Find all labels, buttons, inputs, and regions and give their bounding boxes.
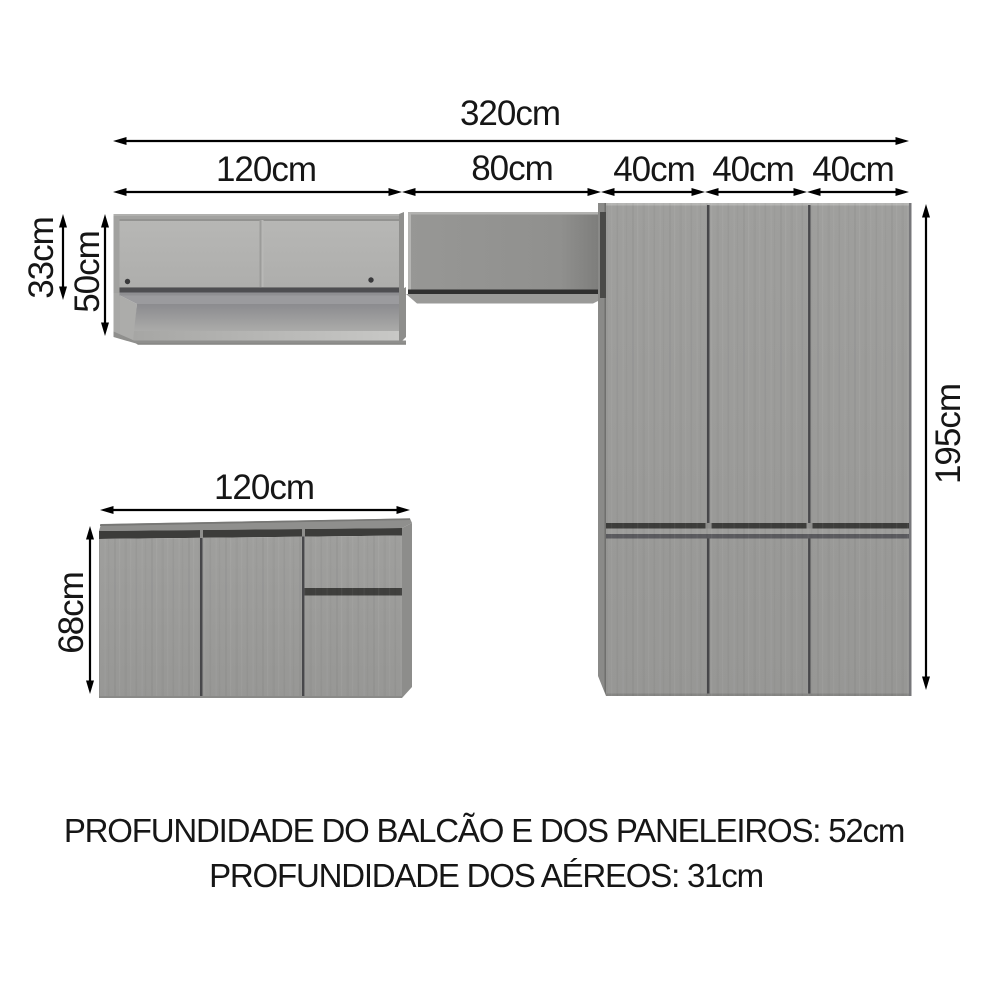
svg-text:120cm: 120cm [214,468,314,507]
svg-text:320cm: 320cm [460,94,560,133]
svg-text:195cm: 195cm [929,384,968,484]
svg-text:80cm: 80cm [471,149,553,188]
svg-text:PROFUNDIDADE DO BALCÃO E DOS P: PROFUNDIDADE DO BALCÃO E DOS PANELEIROS:… [64,812,904,849]
svg-text:40cm: 40cm [613,150,695,189]
svg-text:40cm: 40cm [712,150,794,189]
svg-text:40cm: 40cm [812,150,894,189]
svg-text:68cm: 68cm [52,572,91,654]
svg-text:33cm: 33cm [22,217,61,299]
svg-text:PROFUNDIDADE DOS AÉREOS: 31cm: PROFUNDIDADE DOS AÉREOS: 31cm [209,857,763,894]
svg-text:120cm: 120cm [216,150,316,189]
svg-text:50cm: 50cm [68,231,107,313]
